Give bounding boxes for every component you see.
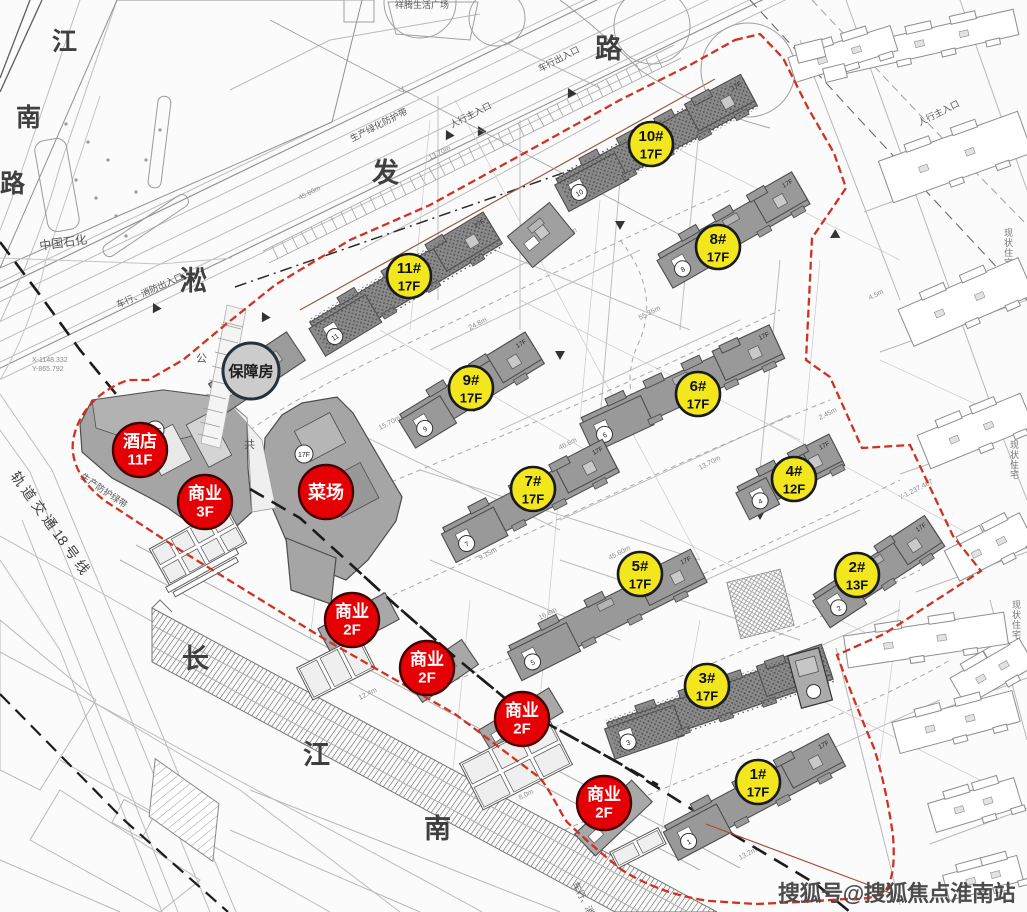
svg-text:3#: 3# bbox=[699, 670, 716, 687]
svg-text:8#: 8# bbox=[710, 231, 727, 248]
svg-text:商业: 商业 bbox=[587, 784, 621, 804]
svg-text:12F: 12F bbox=[783, 482, 805, 497]
svg-text:10#: 10# bbox=[638, 128, 664, 145]
svg-text:1#: 1# bbox=[750, 766, 767, 783]
svg-text:4#: 4# bbox=[786, 463, 803, 480]
svg-text:3F: 3F bbox=[196, 504, 214, 521]
svg-text:7#: 7# bbox=[525, 473, 542, 490]
svg-text:酒店: 酒店 bbox=[123, 431, 157, 451]
svg-text:13F: 13F bbox=[846, 578, 868, 593]
svg-text:17F: 17F bbox=[640, 147, 662, 162]
svg-text:X-1148.332: X-1148.332 bbox=[32, 357, 68, 364]
svg-text:17F: 17F bbox=[687, 397, 709, 412]
svg-text:商业: 商业 bbox=[335, 601, 369, 621]
svg-text:路: 路 bbox=[0, 170, 26, 198]
svg-text:发: 发 bbox=[371, 157, 399, 188]
svg-text:11F: 11F bbox=[127, 452, 152, 469]
svg-text:17F: 17F bbox=[398, 279, 420, 294]
svg-text:商业: 商业 bbox=[410, 649, 444, 669]
svg-text:江: 江 bbox=[303, 740, 330, 770]
svg-text:菜场: 菜场 bbox=[307, 483, 344, 503]
svg-text:江: 江 bbox=[52, 28, 77, 56]
svg-text:商业: 商业 bbox=[505, 700, 539, 720]
svg-text:17F: 17F bbox=[629, 577, 651, 592]
svg-text:Y-865.792: Y-865.792 bbox=[32, 366, 64, 373]
svg-text:现状住宅: 现状住宅 bbox=[1009, 440, 1019, 480]
svg-text:长: 长 bbox=[182, 644, 210, 674]
svg-text:9#: 9# bbox=[463, 372, 480, 389]
svg-text:2F: 2F bbox=[418, 670, 436, 687]
svg-text:2F: 2F bbox=[513, 721, 531, 738]
svg-text:11#: 11# bbox=[397, 260, 422, 277]
svg-text:南: 南 bbox=[424, 814, 451, 844]
svg-text:2F: 2F bbox=[343, 622, 361, 639]
svg-text:2#: 2# bbox=[849, 559, 866, 576]
svg-text:商业: 商业 bbox=[188, 483, 222, 503]
svg-text:路: 路 bbox=[595, 33, 623, 64]
svg-text:公: 公 bbox=[196, 353, 207, 365]
svg-text:17F: 17F bbox=[707, 250, 729, 265]
svg-text:2F: 2F bbox=[595, 805, 613, 822]
svg-text:南: 南 bbox=[16, 104, 41, 132]
svg-text:17F: 17F bbox=[696, 689, 718, 704]
svg-text:共: 共 bbox=[244, 438, 255, 451]
svg-text:17F: 17F bbox=[522, 492, 544, 507]
svg-text:祥腾生活广场: 祥腾生活广场 bbox=[395, 0, 449, 10]
svg-text:保障房: 保障房 bbox=[227, 362, 273, 380]
svg-text:现状住宅: 现状住宅 bbox=[1011, 600, 1021, 640]
svg-text:搜狐号@搜狐焦点淮南站: 搜狐号@搜狐焦点淮南站 bbox=[778, 881, 1015, 906]
svg-text:5#: 5# bbox=[632, 558, 649, 575]
svg-text:17F: 17F bbox=[747, 785, 769, 800]
svg-text:淞: 淞 bbox=[180, 266, 207, 296]
svg-text:17F: 17F bbox=[460, 391, 482, 406]
svg-text:6#: 6# bbox=[690, 378, 707, 395]
svg-text:17F: 17F bbox=[298, 452, 310, 459]
